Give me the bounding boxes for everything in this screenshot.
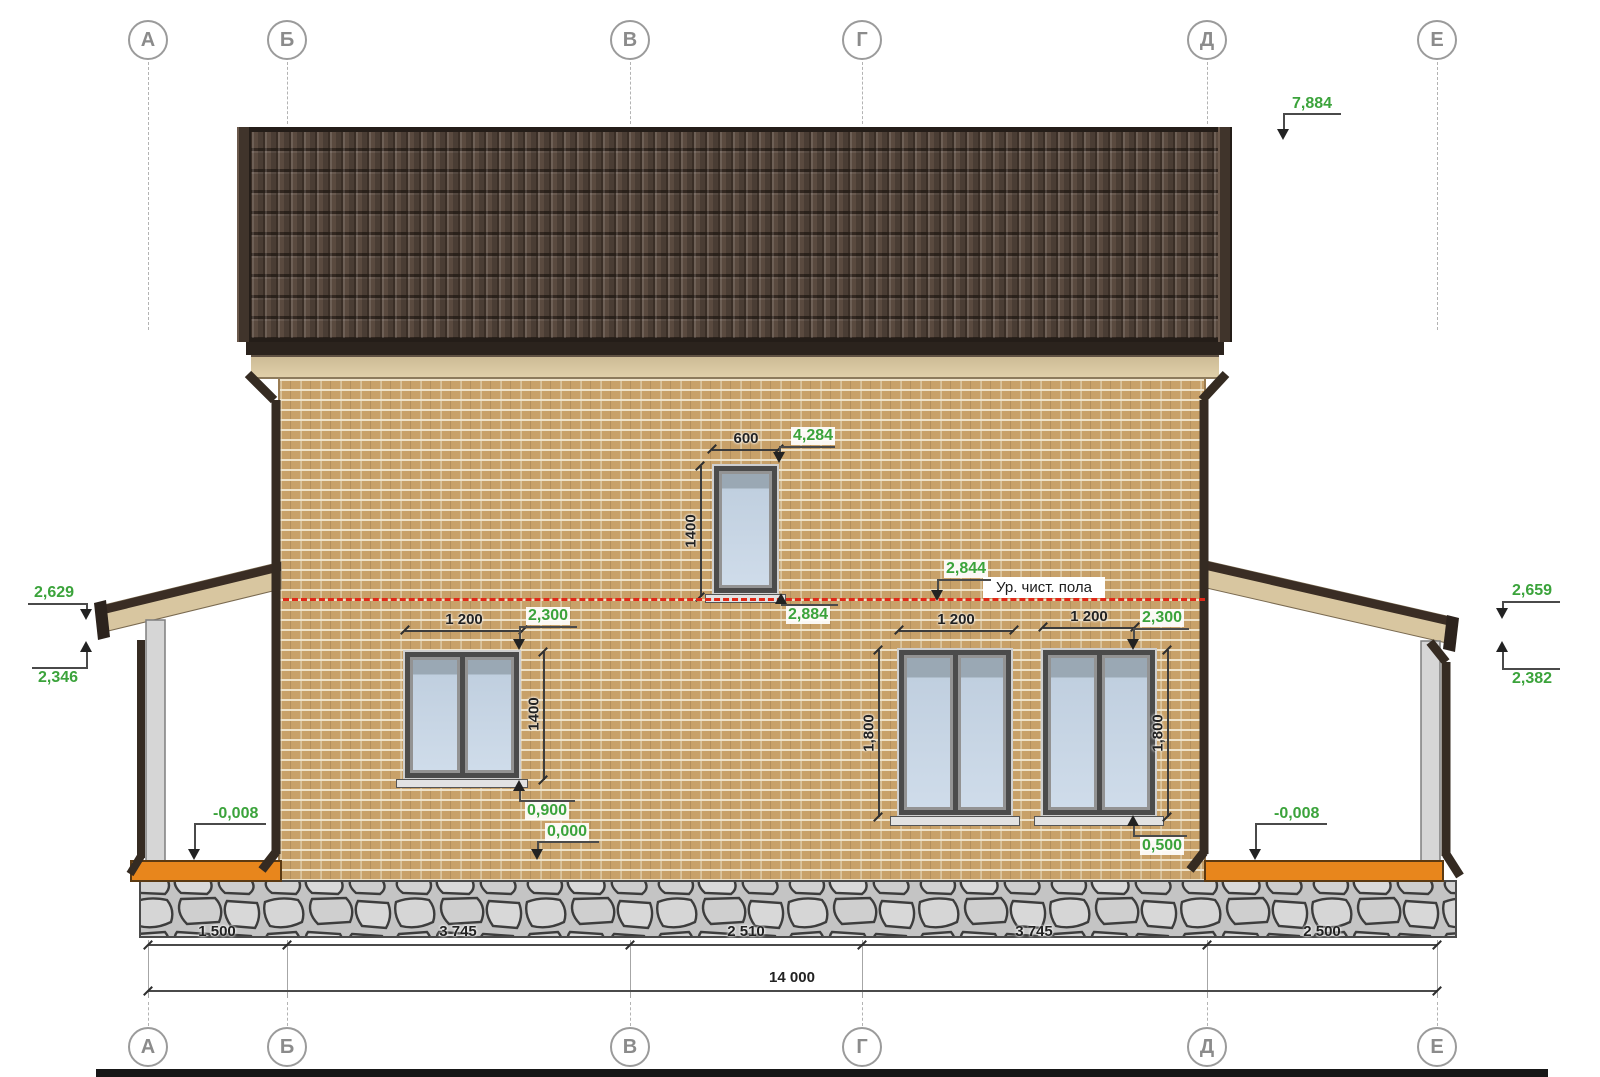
- dim-b-v: 3 745: [439, 923, 477, 940]
- dim-line: [899, 630, 1014, 632]
- axis-circle-bottom-g: Г: [842, 1027, 882, 1067]
- right-porch-downspout: [1430, 642, 1460, 876]
- left-porch-roof-cap: [94, 600, 110, 640]
- leader: [519, 791, 521, 800]
- elevation-roof-ridge: 7,884: [1290, 95, 1334, 113]
- right-porch-roof-cap: [1443, 615, 1459, 652]
- axis-circle-bottom-e: Е: [1417, 1027, 1457, 1067]
- left-porch-roof-edge: [100, 562, 281, 615]
- dim-v-g: 2 510: [727, 923, 765, 940]
- window-sill: [890, 816, 1020, 826]
- elevation-w1-head: 2,300: [526, 607, 570, 625]
- left-porch-post: [146, 620, 165, 861]
- elevation-right-canopy-bottom: 2,382: [1510, 670, 1554, 688]
- leader: [1502, 601, 1560, 603]
- leader: [194, 823, 266, 825]
- window-first-floor-mid: [897, 648, 1013, 817]
- axis-line-top-a: [148, 62, 149, 330]
- arrow-down-icon: [188, 849, 200, 860]
- window-first-floor-right: [1041, 648, 1157, 817]
- roof-gable-trim-left: [237, 127, 251, 342]
- window-sill: [1034, 816, 1164, 826]
- arrow-up-icon: [775, 593, 787, 604]
- right-porch-roof-edge: [1202, 560, 1451, 626]
- leader: [1133, 628, 1189, 630]
- dim-g-d: 3 745: [1015, 923, 1053, 940]
- dim-w1-height: 1400: [526, 697, 543, 730]
- left-porch-roof: [100, 562, 281, 633]
- dim-line: [405, 630, 523, 632]
- window-glass: [410, 657, 460, 773]
- leader: [1283, 113, 1285, 129]
- dim-line: [1167, 650, 1169, 817]
- axis-line-bottom-a: [148, 1002, 149, 1026]
- axis-circle-top-g: Г: [842, 20, 882, 60]
- elevation-attic-window-sill: 2,884: [786, 606, 830, 624]
- elevation-drawing-canvas: А Б В Г Д Е: [0, 0, 1600, 1077]
- axis-line-bottom-v: [630, 1002, 631, 1026]
- elevation-right-porch-floor: -0,008: [1272, 805, 1321, 823]
- leader: [194, 823, 196, 850]
- axis-line-bottom-g: [862, 1002, 863, 1026]
- roof-tiles: [237, 127, 1232, 342]
- left-porch-downspout: [130, 640, 141, 874]
- dim-w3-height: 1,800: [861, 714, 878, 752]
- dim-a-b: 1 500: [198, 923, 236, 940]
- dim-chain-line: [148, 944, 1437, 946]
- sheet-edge: [96, 1069, 1548, 1077]
- elevation-w34-sill: 0,500: [1140, 837, 1184, 855]
- leader: [1255, 823, 1327, 825]
- arrow-up-icon: [513, 780, 525, 791]
- dim-line: [712, 449, 779, 451]
- axis-circle-top-d: Д: [1187, 20, 1227, 60]
- axis-line-top-g: [862, 62, 863, 124]
- window-attic-glass: [719, 471, 772, 588]
- dim-line: [1043, 627, 1135, 629]
- elevation-first-floor: 0,000: [545, 823, 589, 841]
- window-glass: [1102, 655, 1151, 810]
- axis-line-top-e: [1437, 62, 1438, 330]
- leader: [28, 603, 86, 605]
- dim-total-line: [148, 990, 1437, 992]
- arrow-down-icon: [531, 849, 543, 860]
- arrow-up-icon: [80, 641, 92, 652]
- arrow-down-icon: [1249, 849, 1261, 860]
- elevation-left-canopy-top: 2,629: [32, 584, 76, 602]
- leader: [1283, 113, 1341, 115]
- roof-gable-trim-right: [1218, 127, 1232, 342]
- arrow-up-icon: [1127, 815, 1139, 826]
- leader: [519, 626, 577, 628]
- left-wall-downspout: [248, 374, 276, 870]
- window-glass: [1048, 655, 1097, 810]
- dim-attic-window-height: 1400: [683, 514, 700, 547]
- dim-total: 14 000: [769, 969, 815, 986]
- axis-circle-top-a: А: [128, 20, 168, 60]
- leader: [1133, 826, 1135, 835]
- window-first-floor-left: [403, 650, 521, 780]
- dim-w3-width: 1 200: [937, 611, 975, 628]
- roof-fascia-board: [251, 355, 1219, 379]
- floor-level-label: Ур. чист. пола: [983, 577, 1105, 598]
- right-porch-roof: [1202, 560, 1451, 644]
- axis-line-top-d: [1207, 62, 1208, 124]
- axis-line-bottom-b: [287, 1002, 288, 1026]
- floor-level-line: [283, 598, 1205, 601]
- axis-line-bottom-d: [1207, 1002, 1208, 1026]
- window-attic: [712, 464, 779, 595]
- window-glass: [958, 655, 1007, 810]
- arrow-up-icon: [1496, 641, 1508, 652]
- elevation-right-canopy-top: 2,659: [1510, 582, 1554, 600]
- axis-circle-top-b: Б: [267, 20, 307, 60]
- axis-circle-bottom-d: Д: [1187, 1027, 1227, 1067]
- axis-line-top-v: [630, 62, 631, 124]
- leader: [937, 579, 991, 581]
- dim-w1-width: 1 200: [445, 611, 483, 628]
- leader: [1255, 823, 1257, 850]
- leader: [537, 841, 599, 843]
- window-sill: [396, 779, 528, 788]
- dim-line: [700, 466, 702, 597]
- elevation-w34-head: 2,300: [1140, 609, 1184, 627]
- arrow-down-icon: [773, 452, 785, 463]
- right-porch-post: [1421, 641, 1440, 861]
- arrow-down-icon: [513, 639, 525, 650]
- stone-foundation: [140, 881, 1456, 937]
- dim-line: [878, 650, 880, 817]
- elevation-left-porch-floor: -0,008: [211, 805, 260, 823]
- elevation-second-floor: 2,844: [944, 560, 988, 578]
- roof-eave-band: [246, 342, 1224, 355]
- elevation-attic-window-head: 4,284: [791, 427, 835, 445]
- elevation-left-canopy-bottom: 2,346: [36, 669, 80, 687]
- arrow-down-icon: [931, 590, 943, 601]
- arrow-down-icon: [1277, 129, 1289, 140]
- window-glass: [904, 655, 953, 810]
- leader: [86, 652, 88, 667]
- dim-line: [543, 652, 545, 780]
- leader: [519, 626, 521, 640]
- dim-w4-width: 1 200: [1070, 608, 1108, 625]
- axis-circle-bottom-b: Б: [267, 1027, 307, 1067]
- dim-w4-height: 1,800: [1150, 714, 1167, 752]
- axis-circle-bottom-a: А: [128, 1027, 168, 1067]
- dim-d-e: 2 500: [1303, 923, 1341, 940]
- right-porch-floor: [1205, 861, 1443, 881]
- leader: [1502, 652, 1504, 668]
- leader: [779, 446, 835, 448]
- elevation-w1-sill: 0,900: [525, 802, 569, 820]
- arrow-down-icon: [1496, 608, 1508, 619]
- dim-attic-window-width: 600: [733, 430, 758, 447]
- window-glass: [465, 657, 515, 773]
- arrow-down-icon: [1127, 639, 1139, 650]
- axis-circle-top-e: Е: [1417, 20, 1457, 60]
- axis-line-bottom-e: [1437, 1002, 1438, 1026]
- axis-circle-top-v: В: [610, 20, 650, 60]
- left-porch-floor: [131, 861, 281, 881]
- axis-line-top-b: [287, 62, 288, 124]
- axis-circle-bottom-v: В: [610, 1027, 650, 1067]
- arrow-down-icon: [80, 609, 92, 620]
